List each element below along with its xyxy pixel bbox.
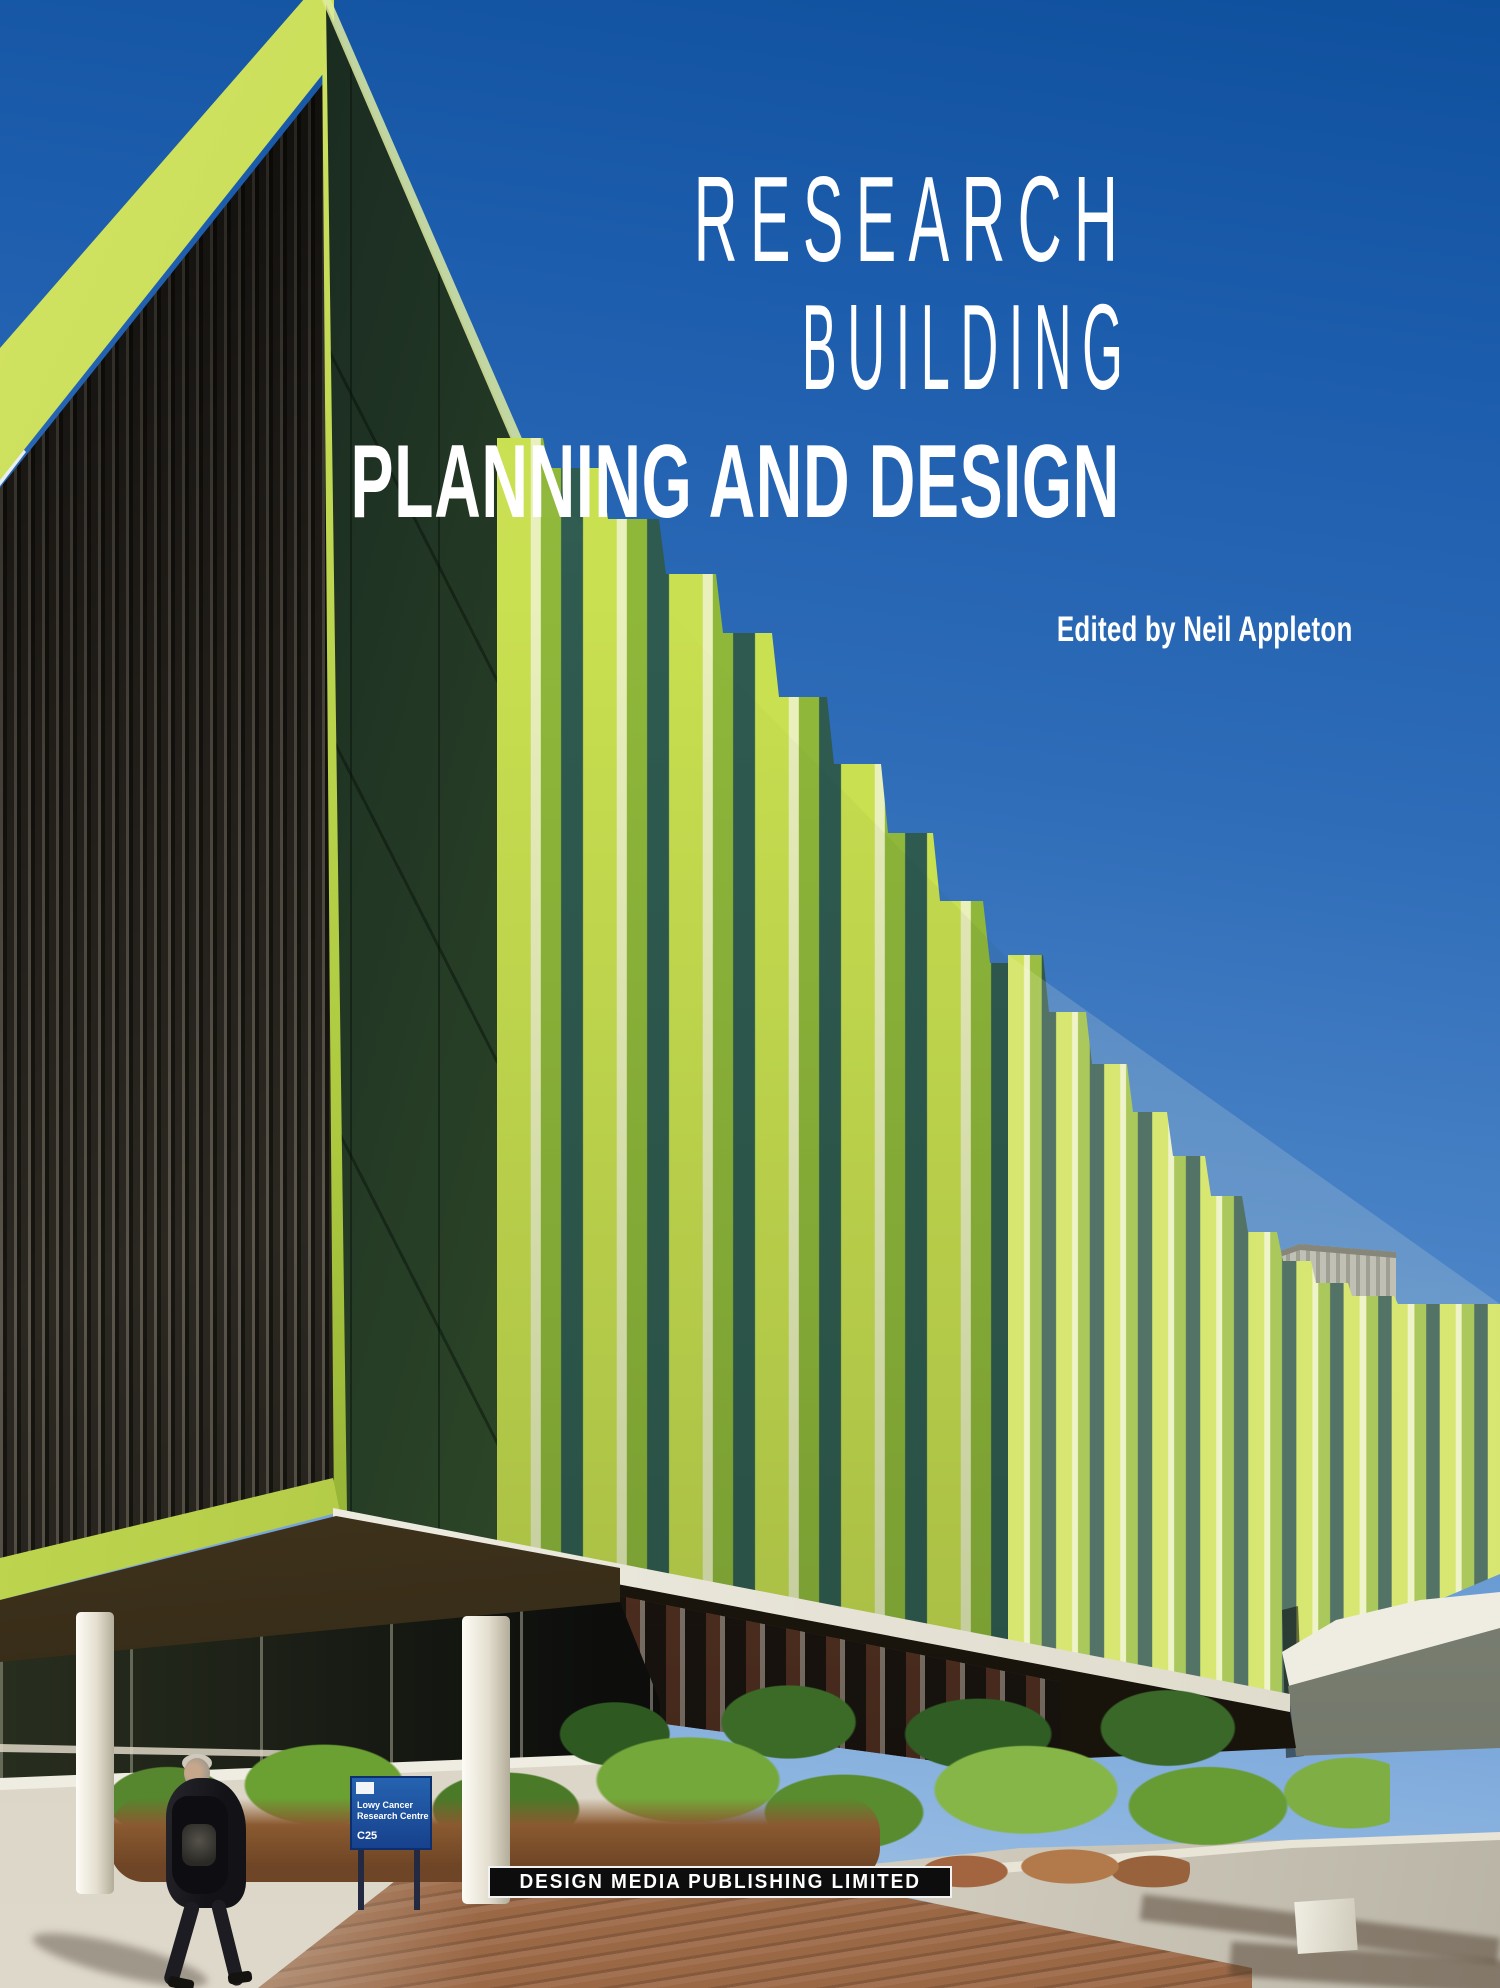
backpack-patch [182,1824,216,1866]
cover-title-line2: BUILDING [801,286,1133,408]
publisher-bar: DESIGN MEDIA PUBLISHING LIMITED [488,1866,952,1898]
pedestrian-shoe [167,1975,195,1988]
white-curb-stone [1294,1898,1357,1954]
sign-text-line1: Lowy Cancer [357,1800,413,1810]
pedestrian-silhouette [148,1750,263,1988]
white-column-right [462,1616,510,1904]
book-cover: Lowy Cancer Research Centre C25 RESEARCH… [0,0,1500,1988]
white-column-left [76,1612,114,1894]
cover-subtitle: PLANNING AND DESIGN [351,430,1120,534]
university-logo-icon [356,1782,374,1794]
sign-board: Lowy Cancer Research Centre C25 [350,1776,432,1850]
cover-title-line1: RESEARCH [693,158,1130,280]
sign-post [358,1848,364,1910]
pedestrian-shoe [227,1970,252,1984]
sign-text-line2: Research Centre [357,1811,429,1821]
sign-building-code: C25 [357,1830,377,1843]
pedestrian-leg [163,1900,201,1987]
cover-editor-credit: Edited by Neil Appleton [1057,612,1353,647]
wayfinding-sign: Lowy Cancer Research Centre C25 [350,1776,432,1910]
publisher-name: DESIGN MEDIA PUBLISHING LIMITED [519,1871,920,1894]
sign-post [414,1848,420,1910]
